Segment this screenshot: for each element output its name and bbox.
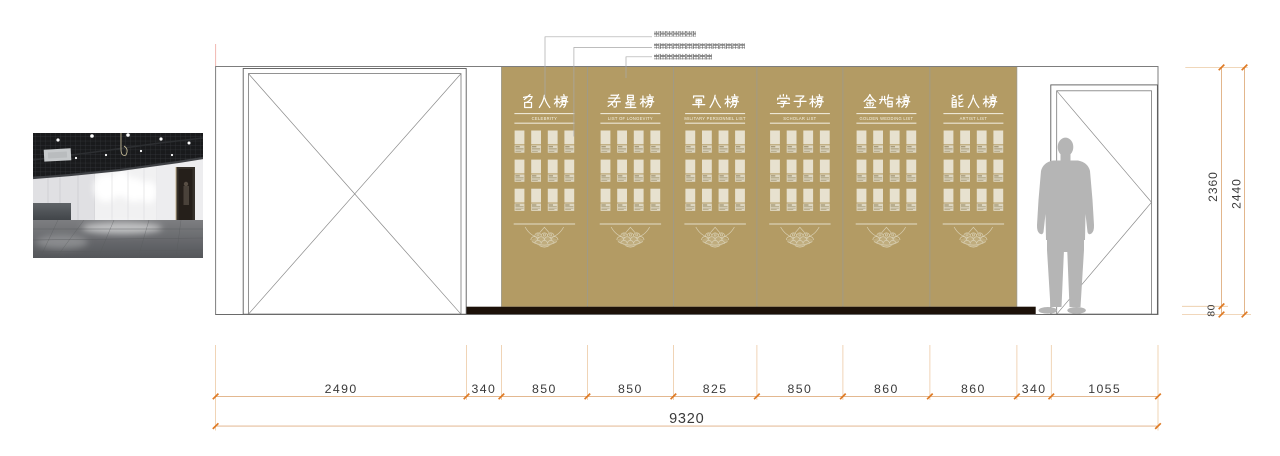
svg-text:850: 850	[618, 382, 643, 396]
svg-text:MILITARY PERSONNEL LIST: MILITARY PERSONNEL LIST	[684, 116, 746, 121]
svg-text:9320: 9320	[669, 411, 704, 427]
svg-text:SCHOLAR LIST: SCHOLAR LIST	[783, 116, 816, 121]
svg-text:850: 850	[788, 382, 813, 396]
svg-text:340: 340	[472, 382, 497, 396]
svg-text:80: 80	[1206, 304, 1218, 317]
svg-text:1055: 1055	[1088, 382, 1121, 396]
svg-text:860: 860	[961, 382, 986, 396]
svg-text:2490: 2490	[325, 382, 358, 396]
svg-text:825: 825	[703, 382, 728, 396]
svg-text:850: 850	[532, 382, 557, 396]
svg-text:2360: 2360	[1206, 171, 1220, 202]
svg-text:CELEBRITY: CELEBRITY	[532, 116, 557, 121]
svg-text:2440: 2440	[1230, 178, 1244, 209]
svg-text:GOLDEN WEDDING LIST: GOLDEN WEDDING LIST	[860, 116, 914, 121]
svg-text:LIST OF LONGEVITY: LIST OF LONGEVITY	[608, 116, 653, 121]
svg-text:860: 860	[874, 382, 899, 396]
svg-text:ARTIST LIST: ARTIST LIST	[960, 116, 988, 121]
svg-text:340: 340	[1022, 382, 1047, 396]
